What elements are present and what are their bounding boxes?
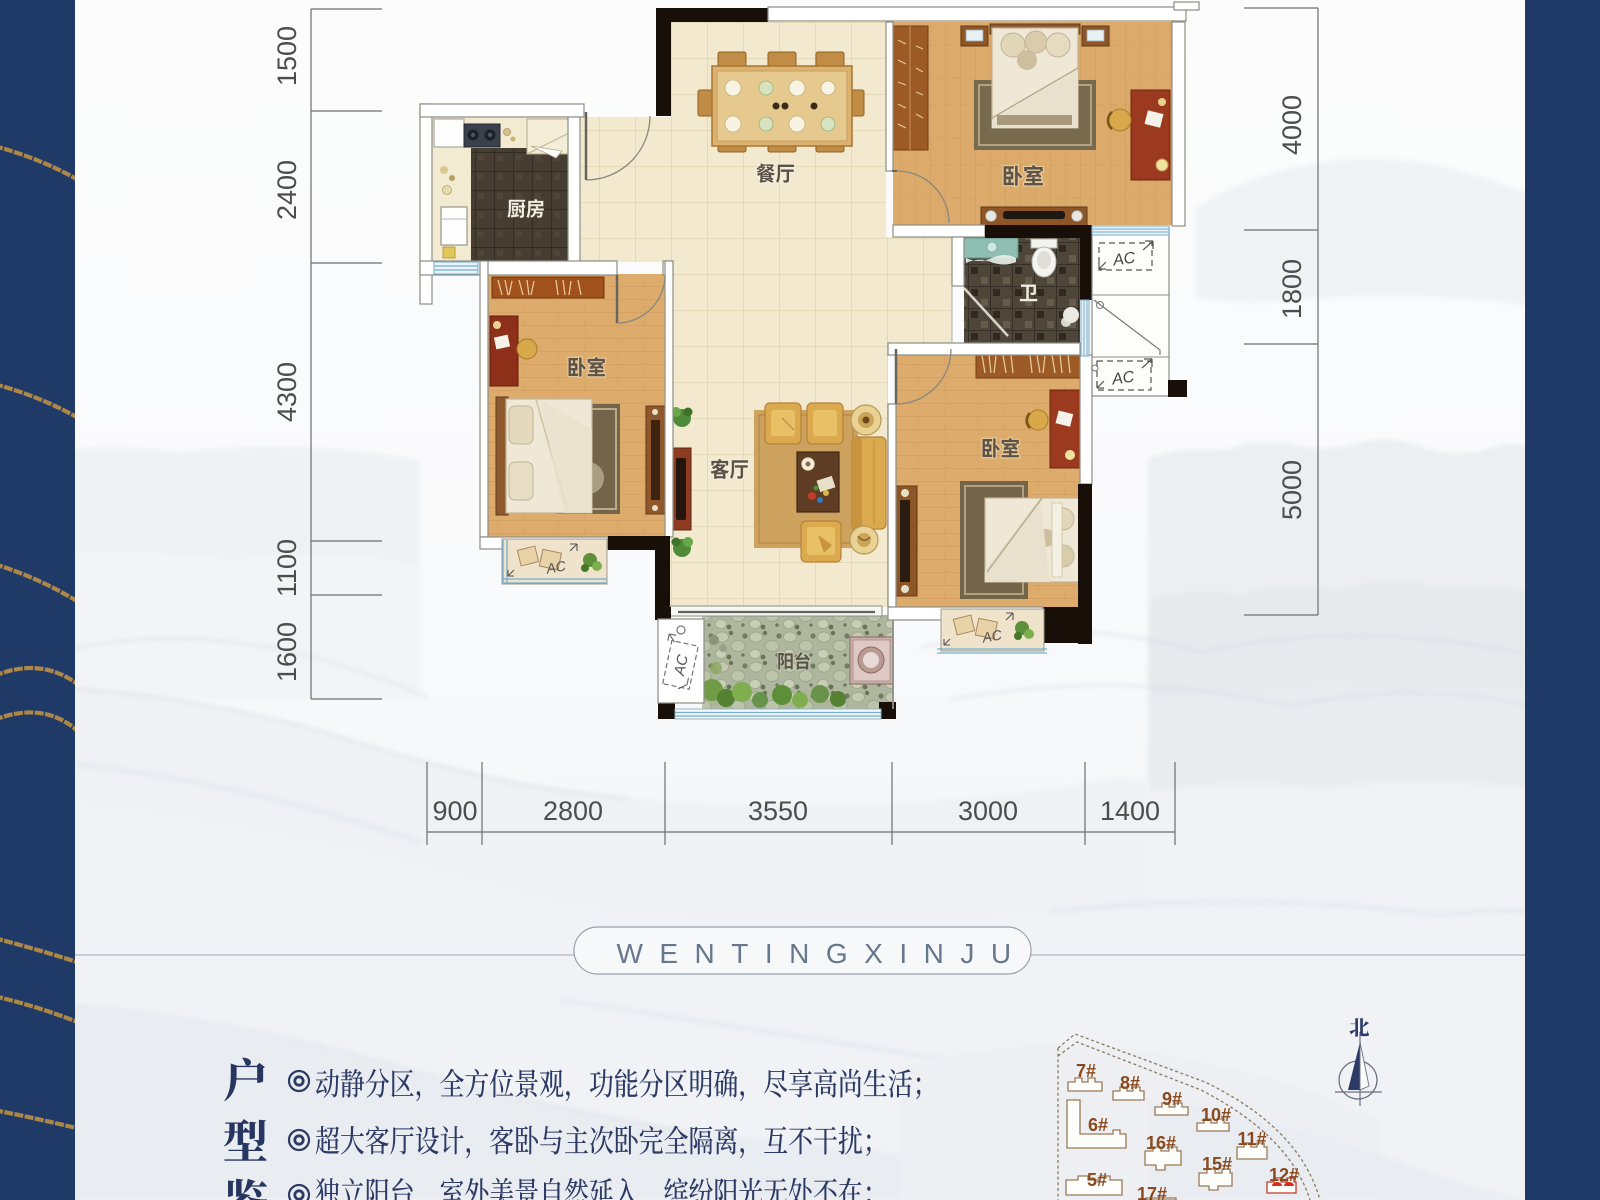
svg-text:11#: 11# <box>1237 1129 1266 1149</box>
svg-text:1600: 1600 <box>272 622 302 682</box>
svg-text:8#: 8# <box>1120 1073 1140 1093</box>
svg-text:9#: 9# <box>1162 1089 1182 1109</box>
svg-text:AC: AC <box>1110 368 1136 388</box>
svg-text:2400: 2400 <box>272 160 302 220</box>
svg-text:15#: 15# <box>1202 1154 1232 1174</box>
svg-text:1400: 1400 <box>1100 796 1160 826</box>
svg-text:4300: 4300 <box>272 362 302 422</box>
svg-text:5#: 5# <box>1087 1170 1107 1190</box>
svg-text:2800: 2800 <box>543 796 603 826</box>
svg-text:10#: 10# <box>1201 1105 1231 1125</box>
svg-text:3550: 3550 <box>748 796 808 826</box>
svg-text:6#: 6# <box>1088 1115 1108 1135</box>
svg-text:WENTINGXINJU: WENTINGXINJU <box>616 938 1027 969</box>
svg-text:12#: 12# <box>1269 1165 1299 1185</box>
svg-text:7#: 7# <box>1076 1061 1096 1081</box>
svg-text:4000: 4000 <box>1277 95 1307 155</box>
svg-text:3000: 3000 <box>958 796 1018 826</box>
svg-text:16#: 16# <box>1146 1133 1176 1153</box>
svg-text:AC: AC <box>1111 249 1137 269</box>
svg-text:900: 900 <box>432 796 477 826</box>
svg-text:17#: 17# <box>1137 1184 1167 1200</box>
svg-text:1500: 1500 <box>272 26 302 86</box>
svg-text:1100: 1100 <box>272 539 302 597</box>
svg-text:1800: 1800 <box>1277 259 1307 319</box>
svg-text:5000: 5000 <box>1277 460 1307 520</box>
